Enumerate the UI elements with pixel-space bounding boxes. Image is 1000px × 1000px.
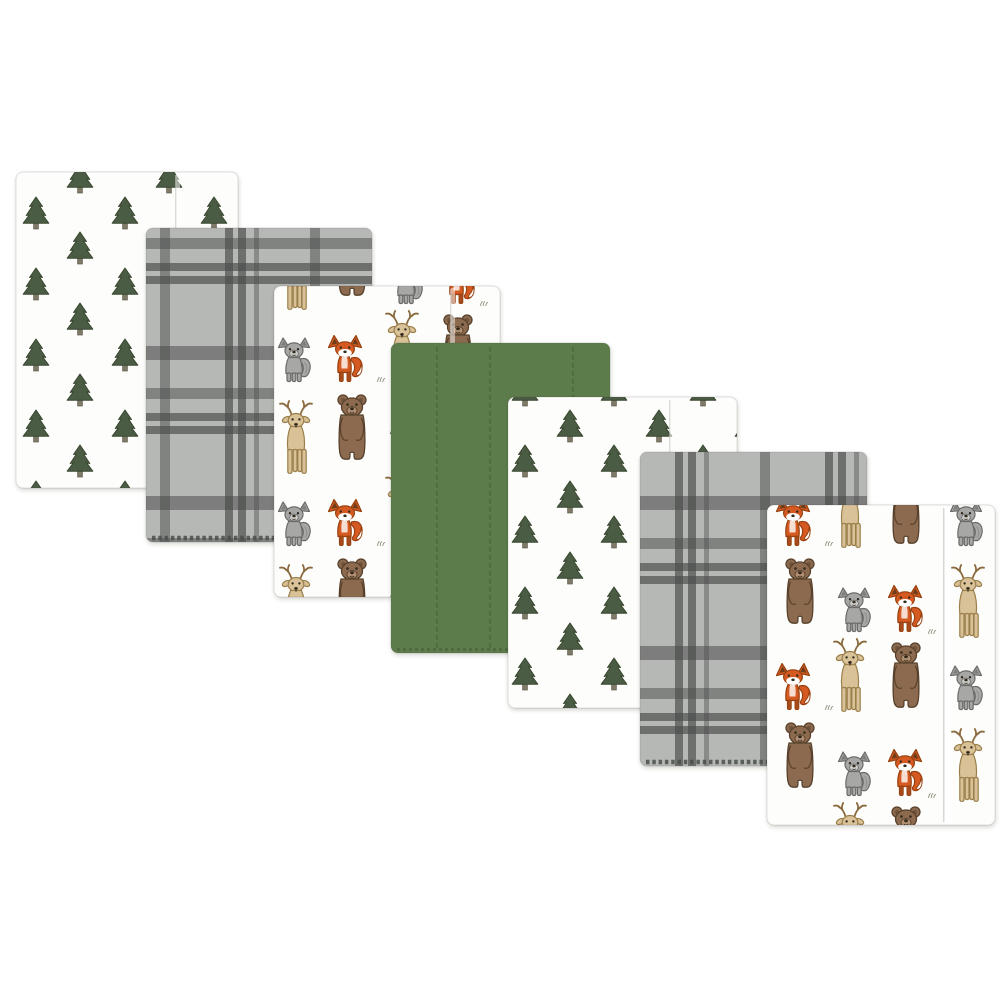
burp-cloth-7-woodland-animals <box>767 505 995 825</box>
product-photo <box>0 0 1000 1000</box>
seam-fold-highlight <box>944 507 950 823</box>
burp-cloth-set-image <box>0 0 1000 1000</box>
cloth-print-woodland-animals <box>767 505 995 825</box>
